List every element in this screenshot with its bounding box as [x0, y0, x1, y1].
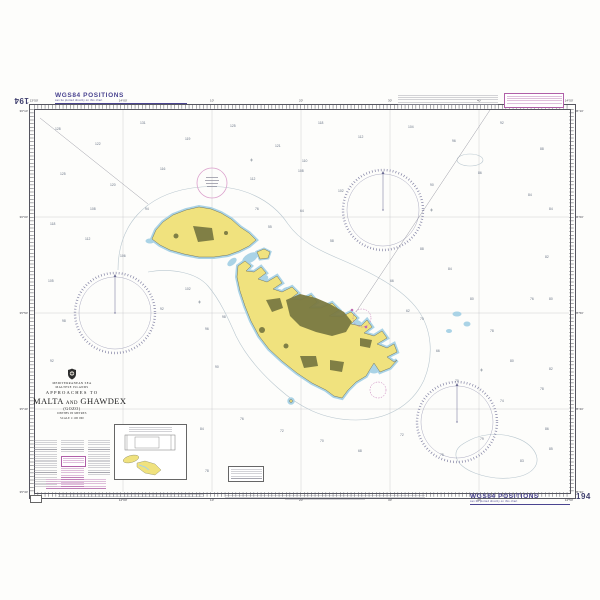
lat-tick-label: 35°50': [20, 311, 29, 315]
publication-line-2: [285, 499, 365, 501]
title-depths: DEPTHS IN METRES: [33, 412, 111, 415]
lat-tick-label: 36°10': [20, 109, 29, 113]
title-main: MALTA AND GHAWDEX: [33, 396, 111, 406]
lon-tick-label: 20': [299, 99, 303, 103]
caution-box-text: [507, 96, 562, 105]
publication-line: [225, 495, 425, 498]
notes-tidal-box: [61, 456, 86, 467]
wgs84-subtitle: can be plotted directly on this chart: [55, 99, 187, 104]
notes-magenta-bottom: [46, 479, 106, 489]
wgs84-subtitle-bottom: can be plotted directly on this chart: [470, 500, 570, 505]
imprint-box: [30, 495, 42, 503]
nautical-chart-sheet: 1281221311191251211181121049692881251201…: [0, 0, 600, 600]
chart-number-top-left: 194: [14, 96, 29, 105]
title-scale: SCALE 1:100 000: [33, 417, 111, 420]
scale-note-box: [228, 466, 264, 482]
title-region: MALTESE ISLANDS: [33, 385, 111, 389]
wgs84-title: WGS84 POSITIONS: [55, 92, 187, 99]
notes-column-2a: [61, 440, 84, 453]
chart-number-bottom-right: 194: [576, 492, 591, 501]
admiralty-crest-icon: [67, 368, 77, 380]
lat-tick-label: 36°00': [20, 215, 29, 219]
inset-diagram: [115, 432, 184, 477]
wgs84-note-bottom: WGS84 POSITIONS can be plotted directly …: [470, 493, 570, 505]
lon-tick-label: 14°50': [565, 99, 574, 103]
wgs84-note-top: WGS84 POSITIONS can be plotted directly …: [55, 92, 187, 104]
source-note-top-right: [398, 95, 498, 106]
title-subtitle: (GOZO): [33, 406, 111, 411]
source-data-inset: [114, 424, 187, 480]
lat-tick-label: 36°10': [575, 109, 584, 113]
lon-tick-label: 13°50': [30, 99, 39, 103]
caution-box-top-right: [504, 93, 564, 108]
lat-tick-label: 35°40': [20, 407, 29, 411]
copyright-line: [58, 494, 203, 497]
wgs84-title-bottom: WGS84 POSITIONS: [470, 493, 570, 500]
title-block: MEDITERRANEAN SEA MALTESE ISLANDS APPROA…: [33, 368, 111, 420]
lat-tick-label: 35°30': [20, 490, 29, 494]
notes-column-3: [88, 440, 110, 475]
lat-tick-label: 35°40': [575, 407, 584, 411]
lon-tick-label: 10': [210, 99, 214, 103]
title-approaches: APPROACHES TO: [33, 390, 111, 395]
lat-tick-label: 35°50': [575, 311, 584, 315]
lat-tick-label: 36°00': [575, 215, 584, 219]
lon-tick-label: 30': [388, 99, 392, 103]
inset-title: [129, 427, 172, 432]
